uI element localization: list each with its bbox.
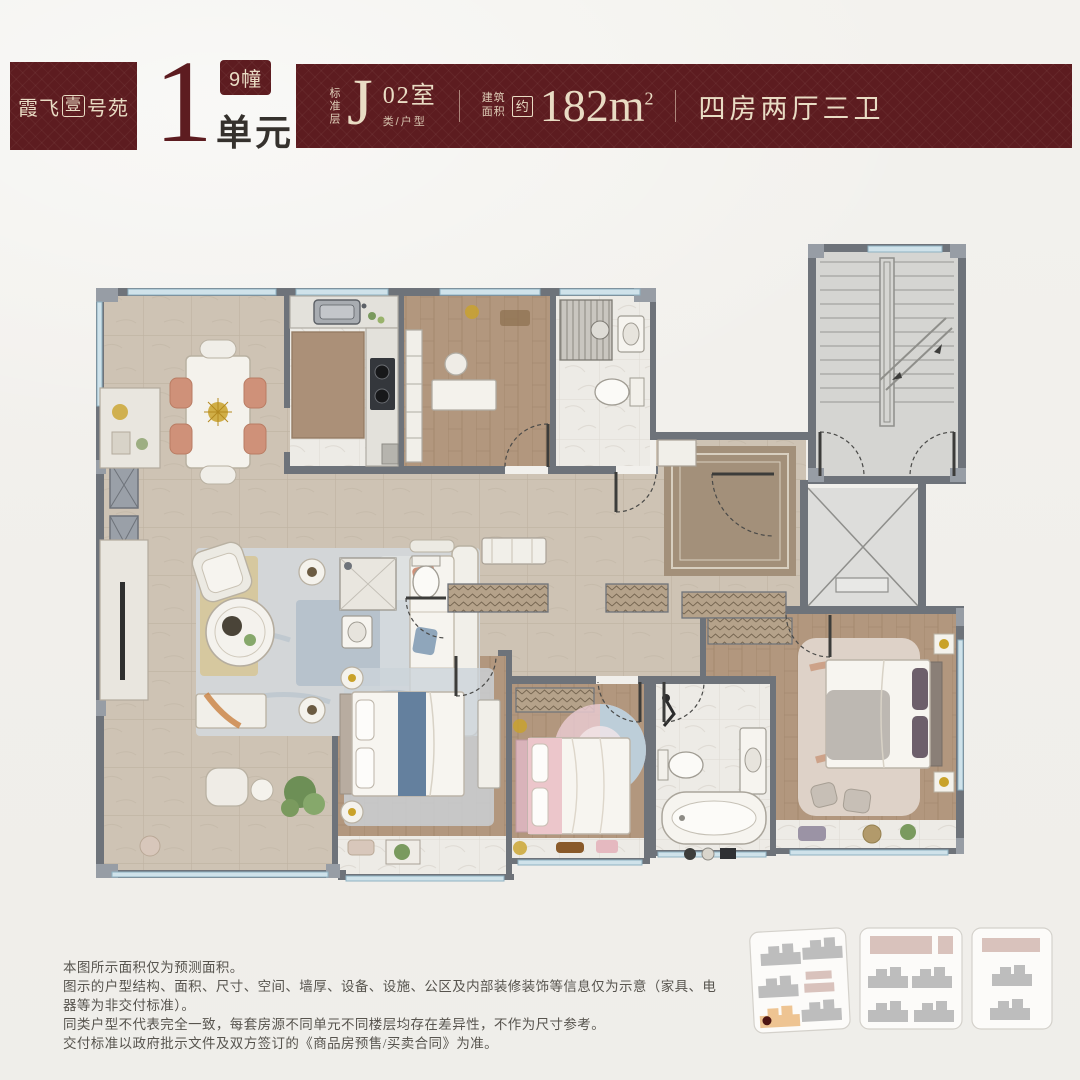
headboard — [930, 662, 942, 766]
toilet-tank — [630, 378, 644, 406]
disclaimer: 本图所示面积仅为预测面积。 图示的户型结构、面积、尺寸、空间、墙厚、设备、设施、… — [63, 958, 723, 1053]
sofa-pillow — [412, 626, 438, 655]
corridor-floor — [290, 474, 656, 558]
kitchen-island — [292, 332, 364, 438]
site-card-3 — [972, 928, 1052, 1029]
desk-chair — [445, 353, 467, 375]
pillow — [356, 748, 374, 788]
bedroom1-desk — [478, 700, 500, 788]
tv-window-seat — [100, 540, 148, 700]
toilet-tank — [658, 750, 668, 780]
site-card-2 — [860, 928, 962, 1029]
elevator-door — [836, 578, 888, 592]
site-card-current — [749, 928, 850, 1034]
display-cabinet — [100, 388, 160, 468]
site-plan — [742, 922, 1062, 1040]
pillow — [912, 716, 928, 758]
pillow — [912, 668, 928, 710]
disclaimer-line: 同类户型不代表完全一致，每套房源不同单元不同楼层均存在差异性，不作为尺寸参考。 — [63, 1015, 723, 1034]
disclaimer-line: 交付标准以政府批示文件及双方签订的《商品房预售/买卖合同》为准。 — [63, 1034, 723, 1053]
headboard — [516, 740, 528, 832]
toilet — [413, 566, 439, 598]
floor-plan — [0, 0, 1080, 1080]
headboard — [340, 694, 352, 794]
disclaimer-line: 图示的户型结构、面积、尺寸、空间、墙厚、设备、设施、公区及内部装修装饰等信息仅为… — [63, 977, 723, 1015]
balcony-cushion — [798, 826, 826, 841]
violin — [556, 842, 584, 853]
desk — [432, 380, 496, 410]
toilet — [669, 752, 703, 778]
tv — [120, 582, 125, 680]
master-wardrobe — [708, 618, 792, 644]
shoe-cabinet — [658, 440, 696, 466]
toilet — [595, 379, 629, 405]
disclaimer-line: 本图所示面积仅为预测面积。 — [63, 958, 723, 977]
bed-runner — [398, 692, 426, 796]
bookshelf — [406, 330, 422, 462]
pillow — [356, 700, 374, 740]
pillow — [532, 744, 548, 782]
pillow — [532, 788, 548, 826]
